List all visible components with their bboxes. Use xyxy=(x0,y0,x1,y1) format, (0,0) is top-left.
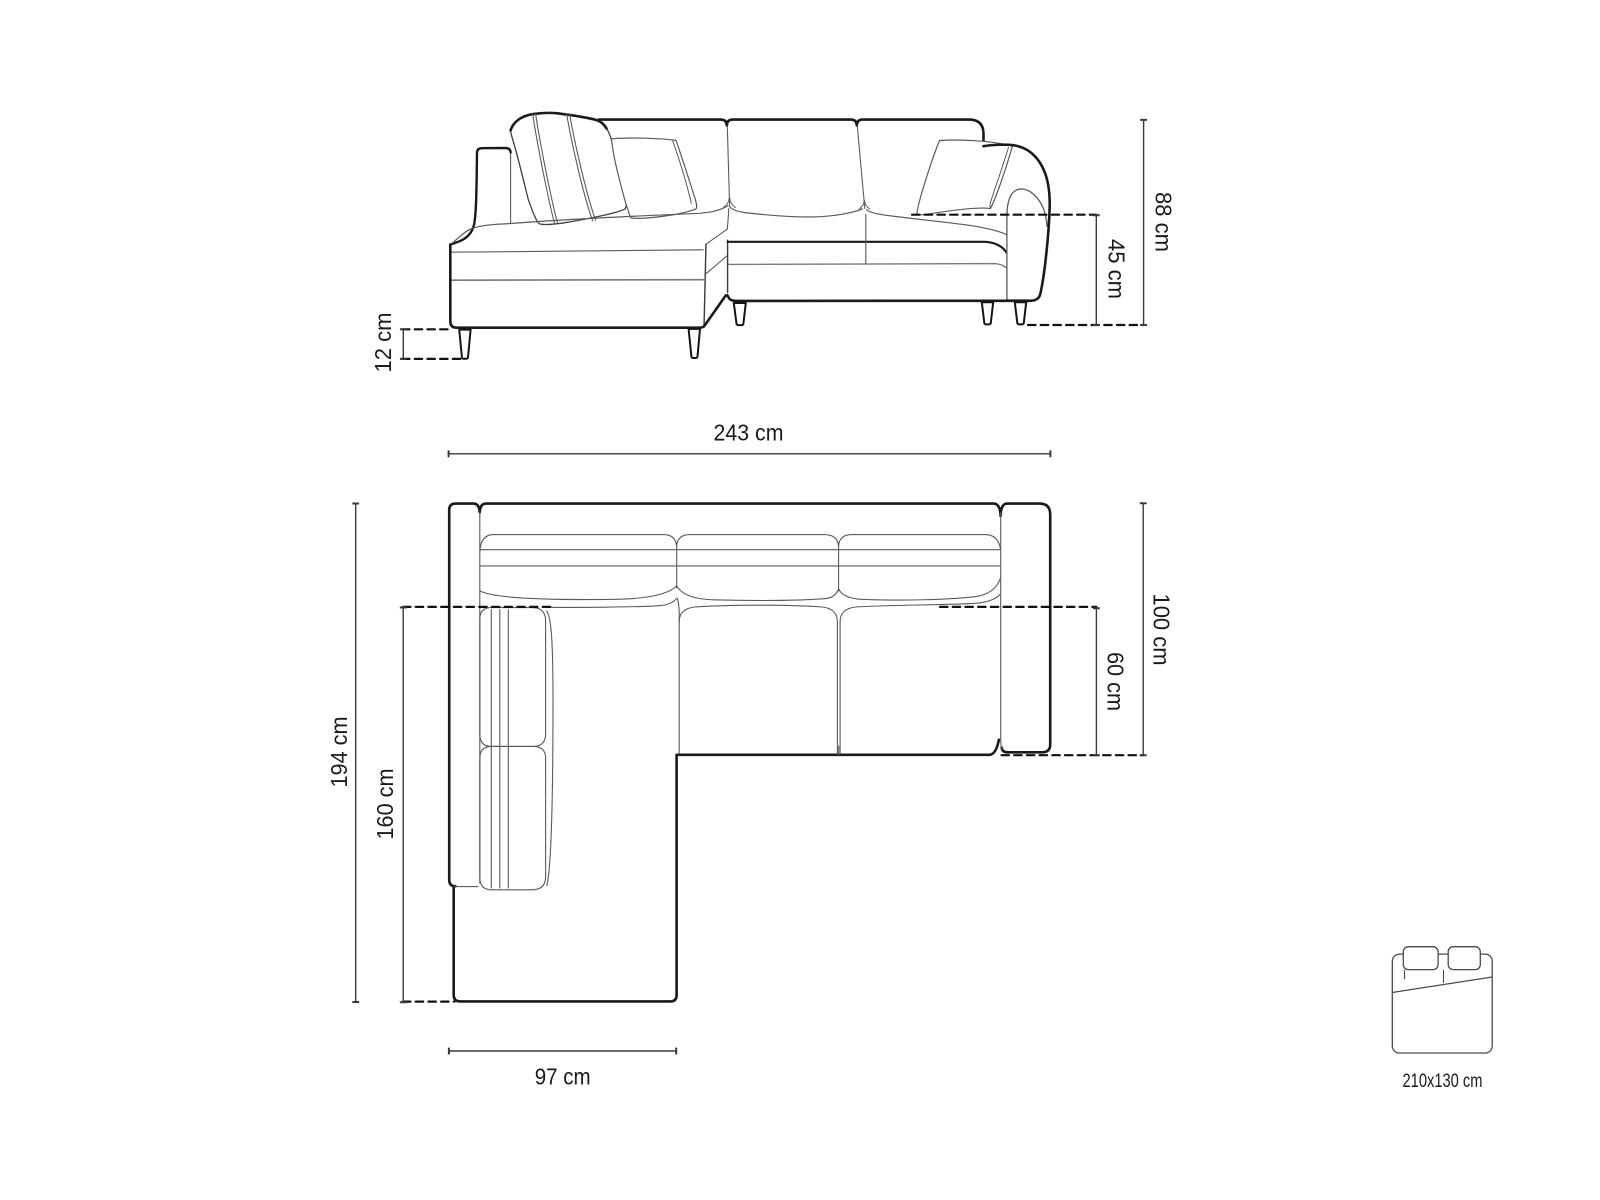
svg-text:243 cm: 243 cm xyxy=(714,420,784,446)
svg-text:194 cm: 194 cm xyxy=(326,717,352,788)
svg-text:97 cm: 97 cm xyxy=(535,1063,591,1089)
svg-text:12 cm: 12 cm xyxy=(370,313,396,373)
svg-text:210x130 cm: 210x130 cm xyxy=(1403,1071,1483,1092)
svg-text:88 cm: 88 cm xyxy=(1151,192,1177,252)
svg-text:60 cm: 60 cm xyxy=(1103,652,1129,711)
svg-text:45 cm: 45 cm xyxy=(1104,239,1130,299)
svg-text:160 cm: 160 cm xyxy=(372,769,398,840)
svg-text:100 cm: 100 cm xyxy=(1149,594,1175,666)
